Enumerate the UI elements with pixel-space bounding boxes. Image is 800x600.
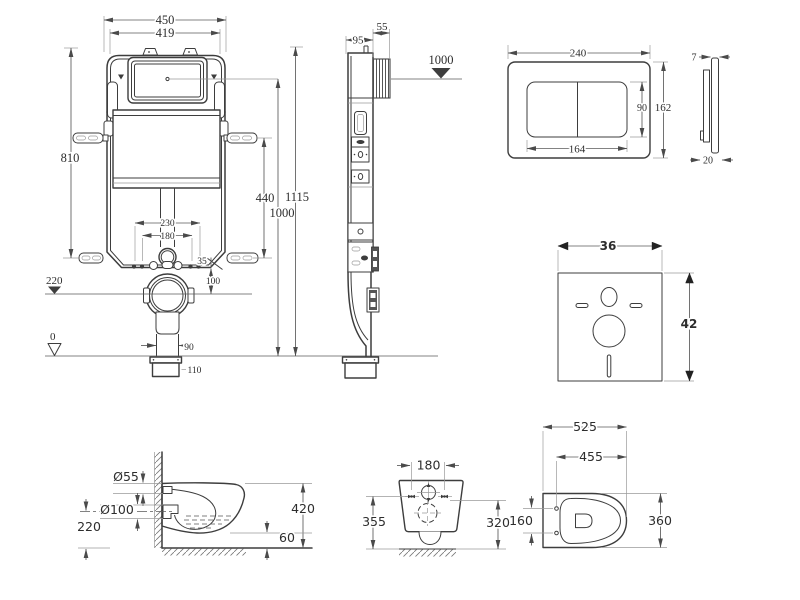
pan-top-view: 525 455 160 360 <box>509 419 672 548</box>
dim-frame-height-810: 810 <box>61 151 80 165</box>
datum-triangle-1000 <box>432 68 451 79</box>
cistern-tank <box>113 110 220 188</box>
dim-plate-depth-20: 20 <box>703 156 713 167</box>
flush-plate-front-view: 240 162 90 164 <box>508 45 671 158</box>
wall-bracket-upper-left <box>73 133 103 143</box>
pan-bottom-lug <box>419 532 441 545</box>
plate-front-panel <box>712 58 719 153</box>
datum-label-0: 0 <box>50 331 56 343</box>
dim-plate-162: 162 <box>655 102 672 114</box>
drain-base-flange <box>150 357 182 363</box>
dim-outlet-height-220: 220 <box>77 519 101 534</box>
pan-rear-body <box>399 481 463 532</box>
dim-buttons-90: 90 <box>637 103 647 114</box>
pan-fixing-hole <box>132 264 136 268</box>
dim-offset-35: 35 <box>197 257 207 267</box>
dim-bolt-180: 180 <box>417 458 441 473</box>
dim-height-1115: 1115 <box>285 190 309 204</box>
dim-length-525: 525 <box>573 419 597 434</box>
wall-bracket-side-profile <box>372 247 379 271</box>
wall-bracket-upper-right <box>227 133 257 143</box>
pan-top-body <box>543 494 627 548</box>
technical-drawing-canvas: 450 419 810 230 180 35 100 90 110 440 10… <box>0 0 800 600</box>
outlet-elbow <box>348 272 366 357</box>
datum-label-1000: 1000 <box>429 53 454 67</box>
drain-socket <box>156 312 179 334</box>
inlet-spud <box>163 487 172 494</box>
floor-hatch <box>162 549 246 556</box>
dim-height-355: 355 <box>362 514 386 529</box>
dim-pad-42: 42 <box>681 317 698 331</box>
installation-dimensions-drawing: 450 419 810 230 180 35 100 90 110 440 10… <box>0 0 800 600</box>
wall-bracket-lower-left <box>79 253 103 263</box>
dim-bolt-160: 160 <box>509 513 533 528</box>
dim-length-455: 455 <box>579 449 603 464</box>
dim-plate-240: 240 <box>570 48 587 60</box>
wall-hatch <box>155 452 163 548</box>
dim-depth-55: 55 <box>377 21 389 33</box>
datum-triangle-0 <box>48 344 61 356</box>
dim-bracket-440: 440 <box>256 191 275 205</box>
ground-hatch <box>399 550 456 557</box>
pan-rear-view: 180 355 320 <box>362 458 510 557</box>
pad-body <box>558 273 662 381</box>
dim-pipe-90: 90 <box>184 343 194 353</box>
flush-plate-side-view: 7 20 <box>690 53 733 167</box>
dim-bolt-spacing-230: 230 <box>160 219 175 229</box>
dim-inlet-dia-55: Ø55 <box>113 469 139 484</box>
frame-top-tab-right <box>183 49 198 56</box>
plate-back-housing <box>704 70 710 142</box>
dim-buttons-164: 164 <box>569 144 586 156</box>
dim-clearance-60: 60 <box>279 530 295 545</box>
dim-outlet-dia-100: Ø100 <box>100 502 134 517</box>
dim-bolt-spacing-180: 180 <box>160 232 175 242</box>
side-slot <box>355 112 367 135</box>
dim-offset-100: 100 <box>206 277 221 287</box>
dim-depth-95: 95 <box>353 35 365 47</box>
sound-insulation-pad: 36 42 <box>558 239 697 381</box>
dim-width-360: 360 <box>648 513 672 528</box>
dim-frame-width-419: 419 <box>156 26 175 40</box>
dim-frame-width-450: 450 <box>156 13 175 27</box>
frame-top-tab-left <box>143 49 158 56</box>
dim-plate-thickness-7: 7 <box>692 53 697 64</box>
dim-height-320: 320 <box>486 515 510 530</box>
dim-base-110: 110 <box>188 366 202 376</box>
inlet-connector-block <box>373 59 390 98</box>
datum-triangle-220 <box>48 287 61 295</box>
cistern-frame-side-view: 95 55 1000 <box>343 21 463 378</box>
dim-pad-36: 36 <box>600 239 617 253</box>
pan-side-section-view: Ø55 Ø100 220 420 60 <box>77 452 315 560</box>
dim-height-1000: 1000 <box>270 206 295 220</box>
datum-label-220: 220 <box>46 275 63 287</box>
dim-pan-height-420: 420 <box>291 501 315 516</box>
